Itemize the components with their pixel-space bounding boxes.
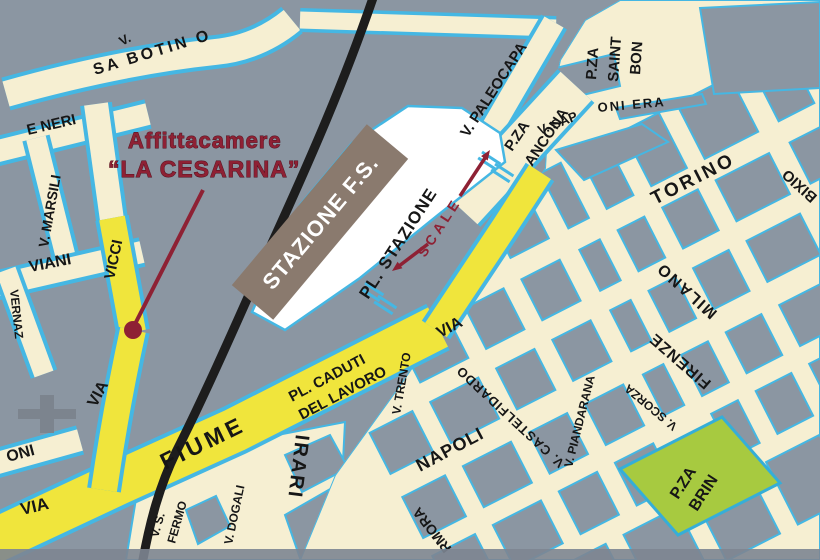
street-label-saintbon-1: P.ZA [583,47,602,81]
road-top [300,20,556,28]
title-line-2: “LA CESARINA” [108,156,300,182]
map-screenshot: STAZIONE F.S. V. SA BOTIN O E NERI V. MA… [0,0,820,560]
street-label-saintbon-2: SAINT [605,36,625,82]
bottom-band [0,549,820,560]
city-block [700,2,820,94]
city-map: STAZIONE F.S. V. SA BOTIN O E NERI V. MA… [0,0,820,560]
title-line-1: Affittacamere [128,128,282,153]
location-marker [124,321,142,339]
street-label-saintbon-3: BON [627,41,646,75]
